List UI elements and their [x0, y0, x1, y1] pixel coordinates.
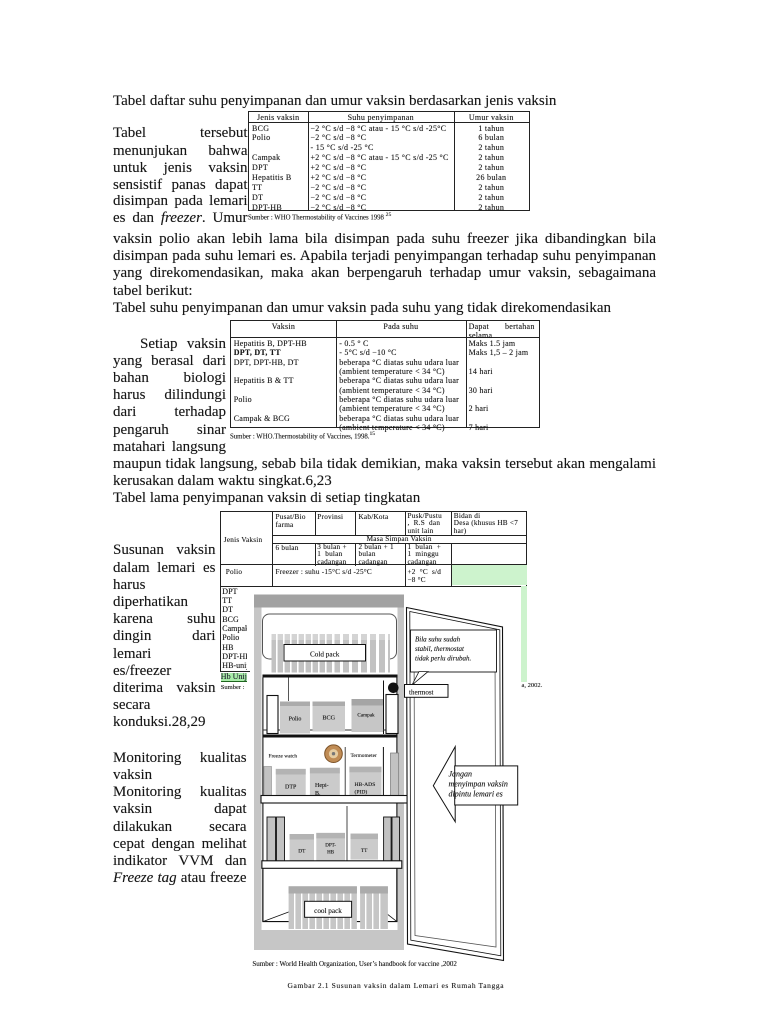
svg-text:stabil, thermostat: stabil, thermostat: [415, 645, 465, 653]
svg-text:(PID): (PID): [355, 789, 368, 796]
svg-text:thermost: thermost: [409, 688, 434, 696]
svg-text:cool pack: cool pack: [314, 907, 342, 915]
svg-text:DTP: DTP: [285, 785, 297, 791]
svg-text:Campak: Campak: [357, 713, 375, 719]
svg-text:Cold pack: Cold pack: [310, 650, 340, 658]
svg-text:BCG: BCG: [322, 715, 335, 722]
svg-text:HB-ADS: HB-ADS: [355, 782, 376, 788]
svg-text:Bila suhu sudah: Bila suhu sudah: [415, 636, 461, 644]
svg-text:Hepi-: Hepi-: [315, 783, 329, 789]
svg-text:DPT-: DPT-: [325, 844, 336, 849]
svg-text:Jangan: Jangan: [449, 769, 473, 778]
svg-text:Freeze watch: Freeze watch: [269, 754, 298, 760]
svg-text:Polio: Polio: [289, 717, 302, 723]
svg-text:Termometer: Termometer: [351, 753, 377, 759]
svg-text:menyimpan vaksin: menyimpan vaksin: [449, 780, 508, 789]
svg-text:DT: DT: [298, 849, 306, 855]
svg-text:TT: TT: [361, 848, 368, 854]
svg-text:HB: HB: [327, 851, 335, 856]
svg-text:dipintu lemari es: dipintu lemari es: [449, 790, 503, 799]
svg-text:tidak perlu dirubah.: tidak perlu dirubah.: [415, 655, 471, 663]
